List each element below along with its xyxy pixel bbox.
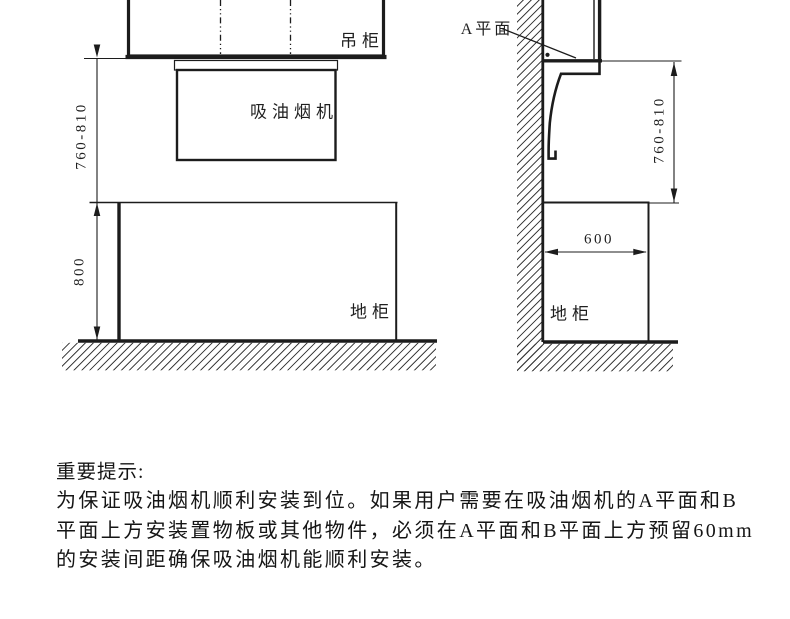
- hood-top-plate: [175, 61, 338, 71]
- base-cabinet-label-front: 地柜: [350, 298, 394, 323]
- arrow-left-600: [545, 249, 559, 255]
- installation-diagram: [0, 0, 790, 450]
- arrow-down-side-bottom: [671, 189, 678, 203]
- floor-hatch: [62, 343, 436, 371]
- hood-height-dimension-side: 760-810: [652, 96, 669, 164]
- hood-side-profile: [549, 61, 600, 159]
- wall-cabinet-label: 吊柜: [340, 27, 384, 52]
- a-plane-leader-dot: [545, 53, 549, 57]
- arrow-down-top: [94, 45, 101, 58]
- notice-line-2: 平面上方安装置物板或其他物件，必须在A平面和B平面上方预留60mm: [56, 517, 754, 546]
- notice-line-3: 的安装间距确保吸油烟机能顺利安装。: [56, 546, 754, 575]
- floor-hatch-side: [517, 344, 673, 372]
- arrow-down-bottom: [94, 327, 101, 340]
- arrow-right-600: [633, 249, 647, 255]
- wall-hatch: [517, 0, 543, 371]
- base-depth-dimension-side: 600: [584, 232, 614, 249]
- arrow-up-side-top: [671, 63, 678, 77]
- base-cabinet-label-side: 地柜: [550, 300, 594, 325]
- notice-line-1: 为保证吸油烟机顺利安装到位。如果用户需要在吸油烟机的A平面和B: [56, 487, 754, 516]
- arrow-up-mid: [94, 203, 101, 216]
- base-height-dimension-front: 800: [72, 256, 89, 286]
- a-plane-label: A平面: [461, 15, 514, 39]
- hood-height-dimension-front: 760-810: [74, 102, 91, 170]
- important-notice: 重要提示: 为保证吸油烟机顺利安装到位。如果用户需要在吸油烟机的A平面和B 平面…: [56, 458, 754, 575]
- hood-label: 吸油烟机: [250, 98, 338, 123]
- notice-title: 重要提示:: [56, 458, 754, 487]
- manual-page: 吊柜 吸油烟机 地柜 760-810 800 A平面 760-810 600 地…: [0, 0, 790, 619]
